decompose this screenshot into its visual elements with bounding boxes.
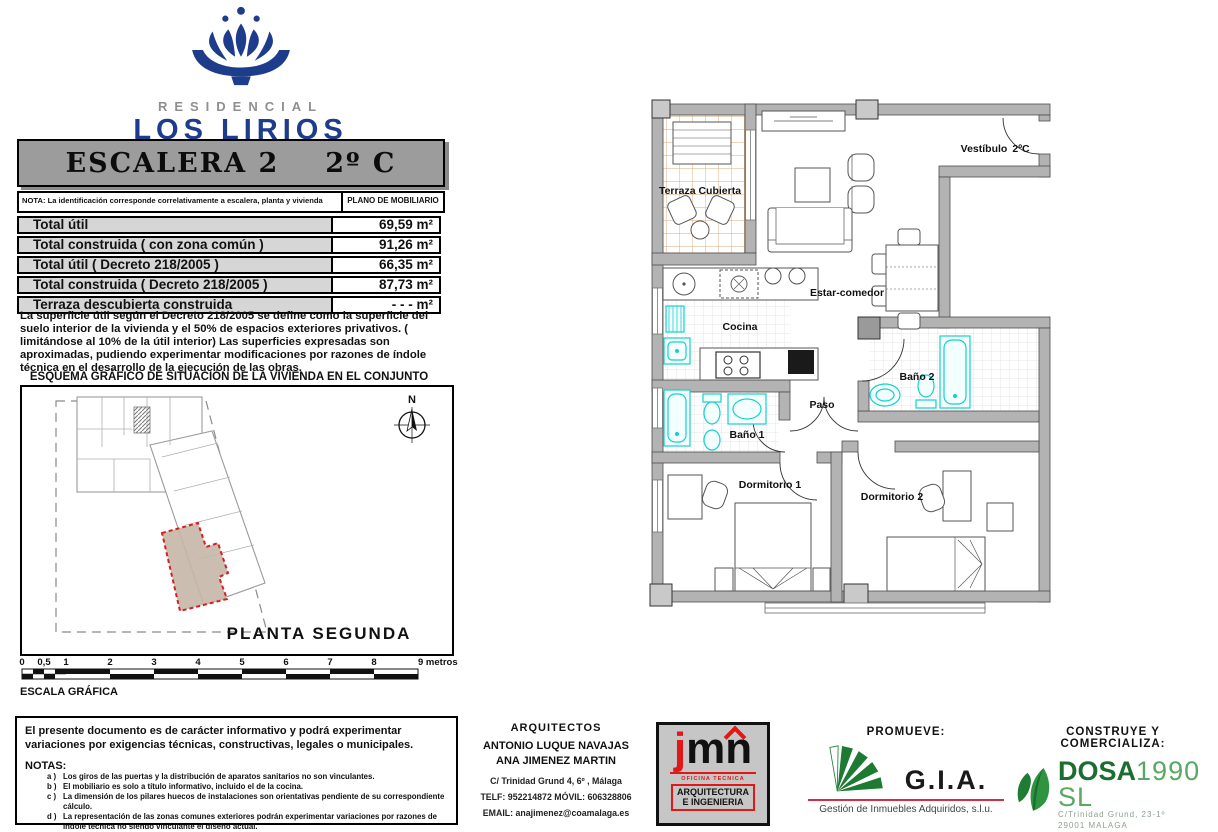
room-label-cocina: Cocina: [722, 321, 757, 333]
room-label-bano2: Baño 2: [899, 371, 934, 383]
floor-plan: Terraza Cubierta Vestíbulo 2ºC Estar-com…: [640, 90, 1080, 652]
nota-bar: NOTA: La identificación corresponde corr…: [17, 191, 445, 213]
decreto-description: La superficie útil según el Decreto 218/…: [20, 310, 452, 374]
nota-item: c )La dimensión de los pilares huecos de…: [47, 792, 448, 812]
table-row: Total construida ( Decreto 218/2005 ) 87…: [17, 276, 441, 294]
site-plan: N PLANTA SEGUNDA: [20, 385, 454, 656]
gia-wordmark: G.I.A.: [905, 765, 988, 796]
svg-text:2: 2: [107, 657, 112, 668]
architects-title: ARQUITECTOS: [462, 722, 650, 734]
room-label-terraza: Terraza Cubierta: [659, 185, 741, 197]
jmn-arquitectura-box: ARQUITECTURA E INGENIERIA: [671, 784, 755, 811]
lotus-flower-icon: [181, 4, 301, 92]
area-label: Total construida ( Decreto 218/2005 ): [19, 278, 331, 292]
graphic-scale: 0 0,5 1 2 3 4 5 6 7 8 9 metros: [14, 656, 474, 690]
nota-text: NOTA: La identificación corresponde corr…: [19, 193, 341, 211]
disclaimer-box: El presente documento es de carácter inf…: [15, 716, 458, 825]
promueve-block: PROMUEVE: G.I.A. Gestión de Inmuebles Ad…: [808, 726, 1004, 815]
bedroom1-furniture: [668, 475, 830, 591]
dosa-logo: DOSA1990 SL C/Trinidad Grund, 23-1º 2900…: [1012, 758, 1214, 832]
room-label-estar: Estar-comedor: [810, 287, 884, 299]
svg-text:N: N: [408, 394, 416, 406]
area-value: 91,26 m²: [331, 238, 439, 252]
plano-mobiliario-label: PLANO DE MOBILIARIO: [341, 193, 443, 211]
area-value: 69,59 m²: [331, 218, 439, 232]
planta-label: PLANTA SEGUNDA: [227, 624, 412, 643]
table-row: Total útil ( Decreto 218/2005 ) 66,35 m²: [17, 256, 441, 274]
promueve-title: PROMUEVE:: [808, 726, 1004, 738]
architects-block: ARQUITECTOS ANTONIO LUQUE NAVAJAS ANA JI…: [462, 722, 650, 818]
construye-block: CONSTRUYE Y COMERCIALIZA: DOSA1990 SL C/…: [1012, 726, 1214, 832]
jmn-oficina-tecnica: OFICINA TECNICA: [659, 776, 767, 782]
room-label-dorm1: Dormitorio 1: [739, 479, 802, 491]
svg-text:3: 3: [151, 657, 156, 668]
svg-text:4: 4: [195, 657, 201, 668]
stair-core: [134, 407, 150, 433]
dosa-address-1: C/Trinidad Grund, 23-1º: [1058, 810, 1214, 821]
svg-text:8: 8: [371, 657, 376, 668]
site-plan-drawing: N PLANTA SEGUNDA: [22, 387, 448, 650]
gia-fan-icon: [825, 740, 901, 798]
svg-text:9 metros: 9 metros: [418, 657, 458, 668]
disclaimer-intro: El presente documento es de carácter inf…: [25, 725, 448, 753]
dosa-address-2: 29001 MALAGA: [1058, 821, 1214, 832]
scale-caption: ESCALA GRÁFICA: [20, 686, 118, 698]
jmn-logo: jmn OFICINA TECNICA ARQUITECTURA E INGEN…: [656, 722, 770, 826]
bedroom2-furniture: [887, 471, 1013, 591]
room-label-bano1: Baño 1: [729, 429, 764, 441]
scale-bar-drawing: 0 0,5 1 2 3 4 5 6 7 8 9 metros: [14, 656, 474, 690]
brand-residencial: RESIDENCIAL: [118, 99, 363, 114]
svg-text:5: 5: [239, 657, 245, 668]
floor-plan-drawing: Terraza Cubierta Vestíbulo 2ºC Estar-com…: [640, 90, 1080, 652]
svg-text:1: 1: [63, 657, 69, 668]
area-value: 87,73 m²: [331, 278, 439, 292]
title-banner: ESCALERA 2 2º C: [17, 139, 445, 187]
room-label-dorm2: Dormitorio 2: [861, 491, 924, 503]
gia-red-rule: [808, 799, 1004, 801]
table-row: Total útil 69,59 m²: [17, 216, 441, 234]
banner-unidad: 2º C: [325, 148, 396, 179]
architects-phone: TELF: 952214872 MÓVIL: 606328806: [462, 792, 650, 802]
area-label: Total útil: [19, 218, 331, 232]
area-label: Total útil ( Decreto 218/2005 ): [19, 258, 331, 272]
unit-label: 2ºC: [1012, 143, 1030, 155]
svg-text:0: 0: [19, 657, 24, 668]
gia-logo: G.I.A.: [808, 740, 1004, 798]
svg-text:6: 6: [283, 657, 288, 668]
room-label-vestibulo: Vestíbulo: [961, 143, 1008, 155]
architects-address: C/ Trinidad Grund 4, 6º , Málaga: [462, 776, 650, 786]
architect-name-1: ANTONIO LUQUE NAVAJAS: [462, 740, 650, 752]
area-value: 66,35 m²: [331, 258, 439, 272]
surface-areas-table: Total útil 69,59 m² Total construida ( c…: [17, 216, 441, 314]
dosa-leaves-icon: [1012, 758, 1054, 820]
table-row: Total construida ( con zona común ) 91,2…: [17, 236, 441, 254]
brand-logo: RESIDENCIAL LOS LIRIOS: [118, 4, 363, 147]
svg-text:0,5: 0,5: [37, 657, 51, 668]
notas-title: NOTAS:: [25, 760, 448, 772]
construye-title: CONSTRUYE Y COMERCIALIZA:: [1012, 726, 1214, 750]
architect-name-2: ANA JIMENEZ MARTIN: [462, 755, 650, 767]
nota-item: a )Los giros de las puertas y la distrib…: [47, 772, 448, 782]
north-compass-icon: N: [394, 394, 430, 443]
room-label-paso: Paso: [809, 399, 834, 411]
esquema-title: ESQUEMA GRÁFICO DE SITUACIÓN DE LA VIVIE…: [17, 371, 441, 383]
scale-bar-segments: [22, 669, 418, 679]
nota-item: b )El mobiliario es solo a título inform…: [47, 782, 448, 792]
banner-escalera: ESCALERA 2: [66, 148, 280, 179]
svg-text:7: 7: [327, 657, 332, 668]
gia-subtitle: Gestión de Inmuebles Adquiridos, s.l.u.: [808, 804, 1004, 815]
nota-item: d )La representación de las zonas comune…: [47, 812, 448, 832]
architects-email: EMAIL: anajimenez@coamalaga.es: [462, 808, 650, 818]
jmn-wordmark: jmn: [659, 727, 767, 771]
area-label: Total construida ( con zona común ): [19, 238, 331, 252]
